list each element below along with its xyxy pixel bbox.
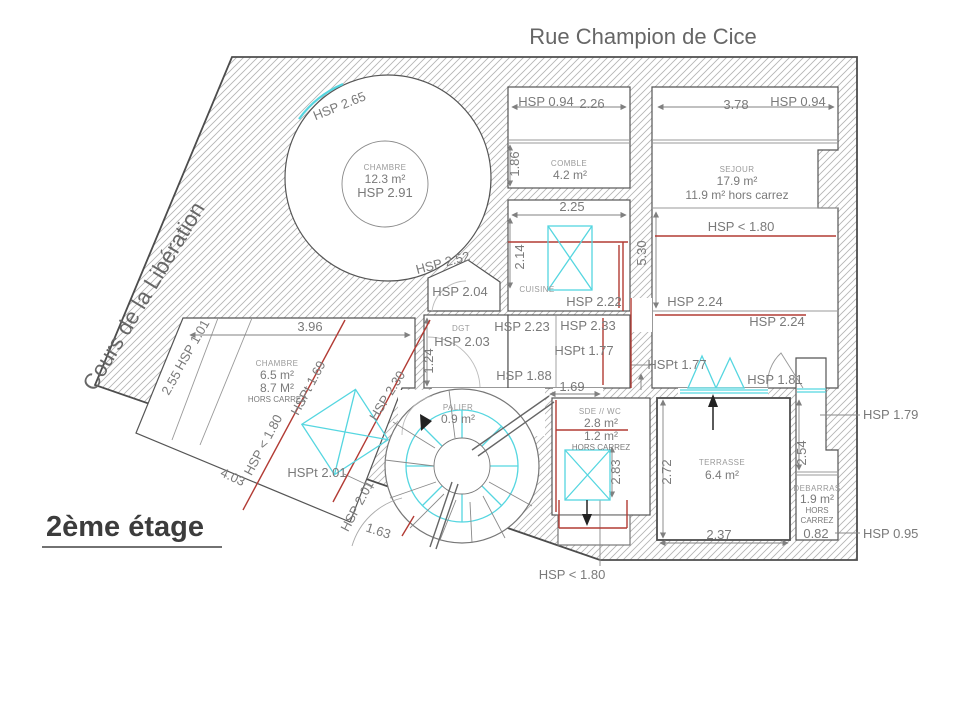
- label-sejour-hsp-low: HSP < 1.80: [708, 219, 775, 234]
- label-palier-name: PALIER: [443, 403, 473, 412]
- dim-chambre2-top: 3.96: [297, 319, 322, 334]
- label-comble-name: COMBLE: [551, 159, 587, 168]
- dim-cuisine-height: 2.14: [512, 244, 527, 269]
- dim-comble-width: 2.26: [579, 96, 604, 111]
- dim-sde-width: 1.69: [559, 379, 584, 394]
- label-sejour-hsp-top: HSP 0.94: [770, 94, 825, 109]
- label-sde-area-hc: 1.2 m²: [584, 429, 618, 443]
- label-sde-hsp-below: HSP < 1.80: [539, 567, 606, 582]
- label-sejour-area: 17.9 m²: [717, 174, 758, 188]
- label-cuisine-hsp: HSP 2.22: [566, 294, 621, 309]
- label-dgt-hsp: HSP 2.03: [434, 334, 489, 349]
- label-terrasse-name: TERRASSE: [699, 458, 745, 467]
- label-chambre2-name: CHAMBRE: [256, 359, 299, 368]
- label-terrasse-hsp-door: HSP 1.81: [747, 372, 802, 387]
- label-comble-area: 4.2 m²: [553, 168, 587, 182]
- label-couloir-hsp-a: HSP 2.23: [494, 319, 549, 334]
- room-sejour: [652, 87, 838, 388]
- label-sde-hors-carrez: HORS CARREZ: [572, 443, 630, 452]
- dim-terrasse-width: 2.37: [706, 527, 731, 542]
- label-sejour-name: SEJOUR: [720, 165, 755, 174]
- label-sejour-hsp-mid2: HSP 2.24: [749, 314, 804, 329]
- label-chambre-ronde-hsp: HSP 2.91: [357, 185, 412, 200]
- floor-title: 2ème étage: [46, 511, 204, 543]
- floor-plan-page: Rue Champion de Cice Cours de la Libérat…: [0, 0, 958, 720]
- label-debarras-hors: HORS: [805, 506, 828, 515]
- sde-protrusion: [558, 515, 630, 545]
- label-dgt-name: DGT: [452, 324, 470, 333]
- label-comble-hsp: HSP 0.94: [518, 94, 573, 109]
- dim-dgt-height: 1.24: [421, 348, 436, 373]
- label-sejour-hsp-mid: HSP 2.24: [667, 294, 722, 309]
- label-debarras-hsp-right: HSP 1.79: [863, 407, 918, 422]
- label-terrasse-hspt: HSPt 1.77: [647, 357, 706, 372]
- label-debarras-carrez: CARREZ: [801, 516, 834, 525]
- dim-debarras-width: 0.82: [803, 526, 828, 541]
- dim-chambre2-door: 1.63: [364, 520, 393, 542]
- label-terrasse-area: 6.4 m²: [705, 468, 739, 482]
- label-palier-area: 0.9 m²: [441, 412, 475, 426]
- label-hsp-204: HSP 2.04: [432, 284, 487, 299]
- label-sde-area: 2.8 m²: [584, 416, 618, 430]
- dim-debarras-height: 2.54: [794, 440, 809, 465]
- label-chambre-ronde-name: CHAMBRE: [364, 163, 407, 172]
- label-sejour-hors-carrez: 11.9 m² hors carrez: [685, 188, 788, 202]
- label-couloir-hspt: HSPt 1.77: [554, 343, 613, 358]
- floor-plan-svg: Rue Champion de Cice Cours de la Libérat…: [0, 0, 958, 720]
- label-chambre2-hspt-door: HSPt 2.01: [287, 465, 346, 480]
- label-couloir-hsp-b: HSP 2.33: [560, 318, 615, 333]
- dim-terrasse-height: 2.72: [659, 459, 674, 484]
- label-couloir-hsp-c: HSP 1.88: [496, 368, 551, 383]
- label-chambre2-area: 6.5 m²: [260, 368, 294, 382]
- label-cuisine-name: CUISINE: [519, 285, 554, 294]
- label-chambre2-area2: 8.7 M²: [260, 381, 294, 395]
- street-label-top: Rue Champion de Cice: [529, 24, 756, 49]
- label-sde-name: SDE // WC: [579, 407, 621, 416]
- label-debarras-hsp-bottom: HSP 0.95: [863, 526, 918, 541]
- dim-sde-height: 2.83: [608, 459, 623, 484]
- label-chambre-ronde-area: 12.3 m²: [365, 172, 406, 186]
- dim-cuisine-width: 2.25: [559, 199, 584, 214]
- dim-sejour-width: 3.78: [723, 97, 748, 112]
- dim-comble-height: 1.86: [507, 151, 522, 176]
- label-debarras-area: 1.9 m²: [800, 492, 834, 506]
- dim-sejour-height: 5.30: [634, 240, 649, 265]
